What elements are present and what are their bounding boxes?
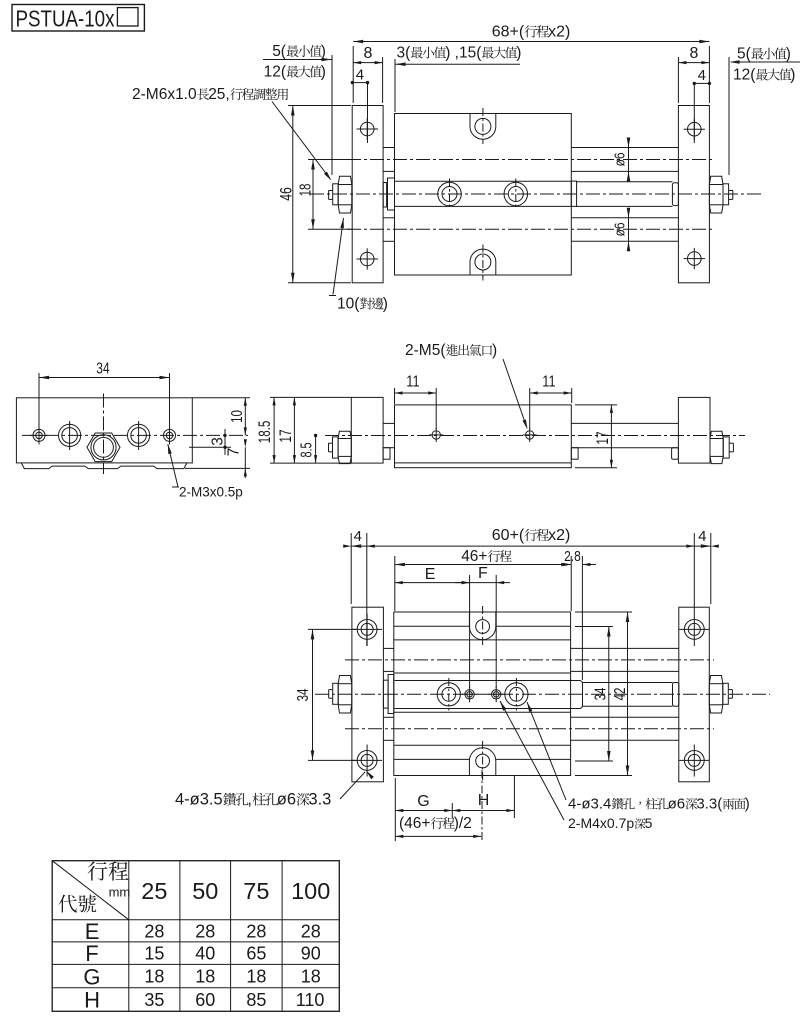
svg-text:46+: 46+ (461, 548, 487, 565)
svg-text:F: F (85, 941, 98, 966)
svg-text:8: 8 (364, 45, 373, 62)
svg-text:5(: 5( (272, 43, 287, 60)
svg-text:): ) (383, 296, 388, 313)
svg-text:2-M5(: 2-M5( (405, 342, 446, 359)
svg-text:28: 28 (195, 921, 215, 941)
svg-text:17: 17 (594, 431, 612, 444)
svg-text:60: 60 (195, 990, 215, 1010)
svg-text:34: 34 (295, 689, 312, 702)
svg-text:60+(: 60+( (492, 527, 525, 544)
svg-text:10: 10 (229, 410, 246, 423)
svg-text:34: 34 (96, 361, 109, 378)
svg-text:2-M6x1.0: 2-M6x1.0 (132, 86, 197, 103)
svg-text:34: 34 (593, 688, 610, 701)
svg-text:) ,15(: ) ,15( (445, 45, 482, 62)
svg-text:28: 28 (144, 921, 164, 941)
svg-text:): ) (516, 45, 521, 62)
svg-text:15: 15 (144, 944, 164, 964)
svg-text:5: 5 (645, 815, 653, 831)
svg-text:3.3: 3.3 (308, 791, 331, 809)
svg-text:35: 35 (144, 990, 164, 1010)
svg-text:F: F (478, 565, 488, 582)
svg-text:28: 28 (301, 921, 321, 941)
svg-text:H: H (478, 792, 490, 809)
svg-text:110: 110 (296, 990, 325, 1010)
svg-text:12(: 12( (264, 64, 287, 81)
svg-text:46: 46 (276, 187, 295, 201)
svg-text:18: 18 (144, 967, 164, 987)
svg-text:100: 100 (291, 878, 330, 904)
svg-text:68+(: 68+( (492, 24, 525, 41)
svg-text:10(: 10( (337, 296, 360, 313)
svg-text:E: E (425, 566, 436, 583)
svg-text:2-M3x0.5p: 2-M3x0.5p (179, 485, 243, 500)
svg-text:2.8: 2.8 (564, 548, 581, 565)
svg-text:,: , (247, 791, 252, 809)
svg-text:85: 85 (246, 990, 266, 1010)
svg-text:75: 75 (243, 878, 269, 904)
svg-text:): ) (321, 43, 326, 60)
svg-text:65: 65 (246, 944, 266, 964)
svg-text:G: G (417, 793, 429, 810)
svg-text:G: G (83, 964, 100, 989)
svg-text:28: 28 (246, 921, 266, 941)
svg-text:18: 18 (298, 184, 315, 197)
svg-text:): ) (492, 342, 497, 359)
svg-text:ø6: ø6 (611, 223, 628, 237)
svg-text:PSTUA-10x: PSTUA-10x (16, 6, 115, 32)
svg-text:): ) (786, 46, 791, 63)
svg-text:8.5: 8.5 (299, 442, 316, 457)
svg-text:x2): x2) (548, 527, 570, 544)
svg-text:x2): x2) (548, 24, 570, 41)
svg-text:18: 18 (246, 967, 266, 987)
svg-text:11: 11 (542, 374, 555, 391)
svg-text:ø6: ø6 (668, 796, 686, 813)
svg-text:40: 40 (195, 944, 215, 964)
svg-text:18.5: 18.5 (256, 421, 274, 444)
svg-text:4: 4 (698, 528, 706, 545)
svg-text:3(: 3( (397, 45, 412, 62)
svg-text:4: 4 (698, 67, 706, 84)
svg-text:42: 42 (612, 688, 629, 701)
svg-text:25: 25 (141, 878, 167, 904)
svg-text:)/2: )/2 (454, 815, 472, 832)
svg-text:mm: mm (109, 885, 131, 900)
svg-text:4: 4 (354, 528, 362, 545)
svg-text:(46+: (46+ (399, 815, 430, 832)
svg-text:): ) (745, 796, 750, 813)
svg-text:50: 50 (192, 878, 218, 904)
svg-text:3: 3 (210, 437, 227, 446)
svg-text:ø6: ø6 (611, 153, 628, 167)
svg-text:11: 11 (406, 374, 419, 391)
svg-text:3.3(: 3.3( (696, 796, 722, 813)
svg-text:18: 18 (301, 967, 321, 987)
svg-text:8: 8 (690, 45, 699, 62)
svg-text:): ) (321, 64, 326, 81)
svg-text:90: 90 (301, 944, 321, 964)
svg-text:ø6: ø6 (277, 791, 296, 809)
svg-text:18: 18 (195, 967, 215, 987)
svg-text:4-ø3.5: 4-ø3.5 (175, 791, 223, 809)
svg-text:5(: 5( (737, 46, 752, 63)
svg-text:2-M4x0.7p: 2-M4x0.7p (568, 815, 634, 831)
svg-text:): ) (790, 67, 795, 84)
svg-text:4: 4 (356, 67, 364, 84)
svg-text:H: H (84, 988, 100, 1013)
svg-text:7: 7 (226, 448, 243, 457)
svg-text:25,: 25, (208, 86, 230, 103)
svg-text:17: 17 (277, 429, 295, 442)
svg-text:12(: 12( (733, 67, 756, 84)
svg-text:4-ø3.4: 4-ø3.4 (568, 796, 611, 813)
svg-text:E: E (85, 919, 100, 944)
